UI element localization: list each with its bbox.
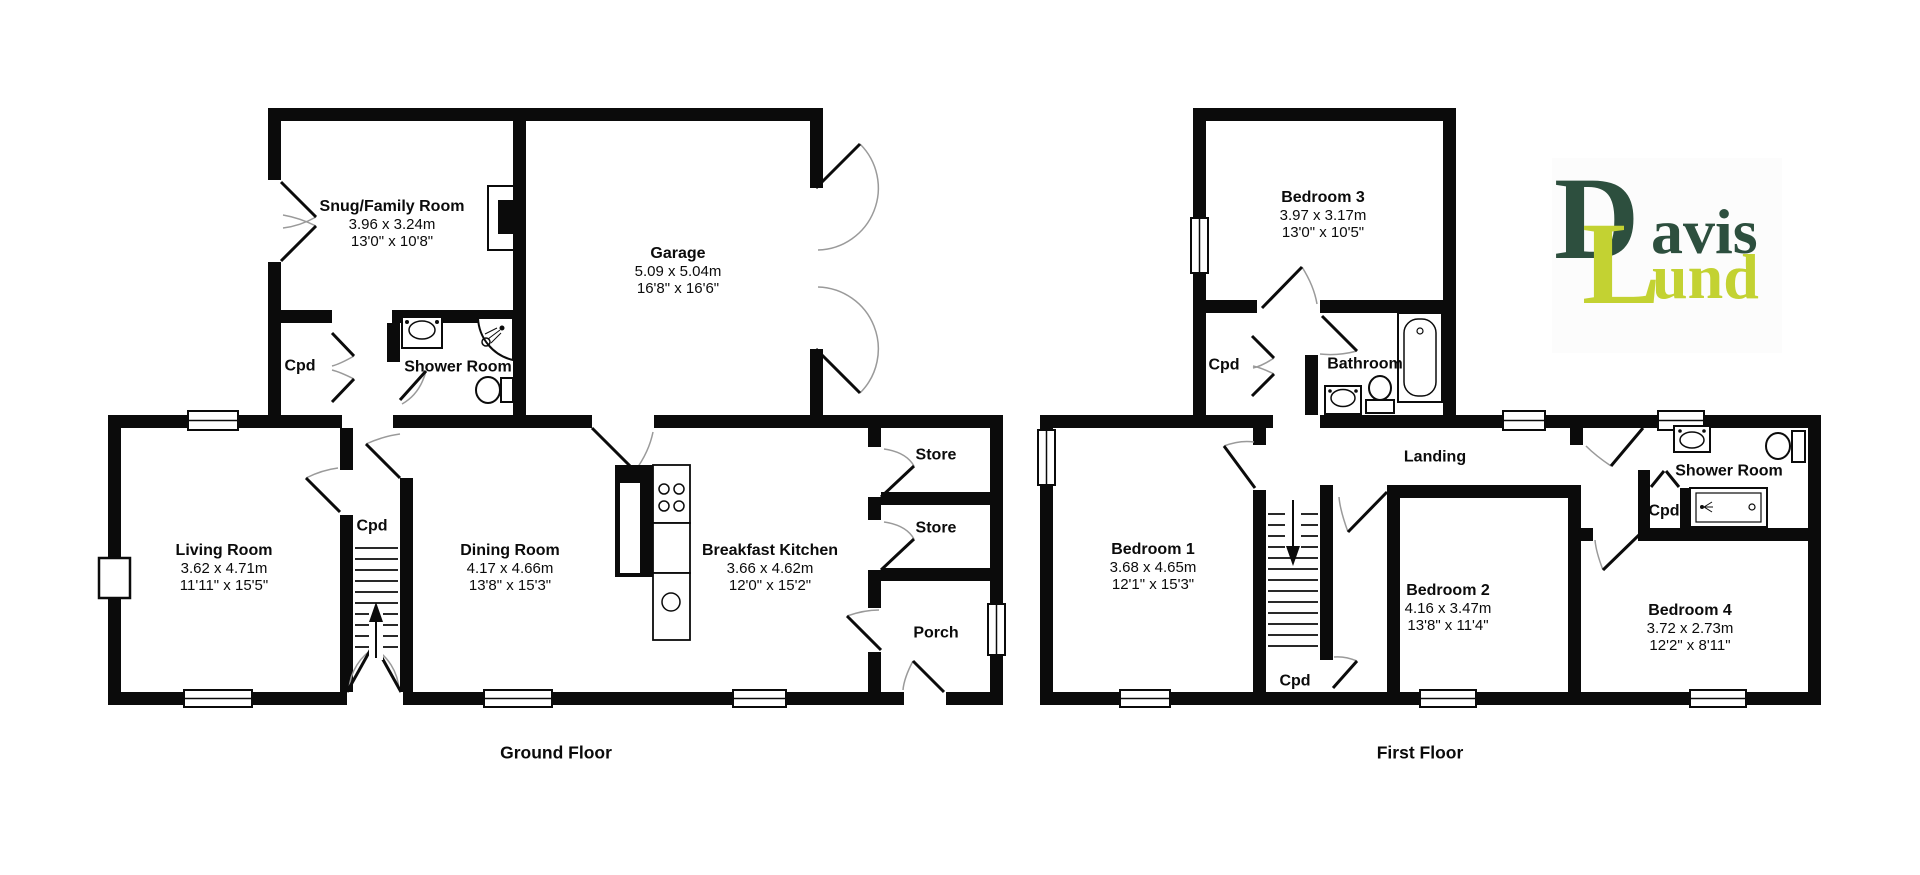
sink-icon (1674, 426, 1710, 452)
ground-floor-title: Ground Floor (500, 743, 612, 764)
room-label-garage: Garage 5.09 x 5.04m 16'8" x 16'6" (635, 245, 722, 298)
davis-lund-logo: D avis L und (1552, 158, 1782, 353)
room-label-breakfast-kitchen: Breakfast Kitchen 3.66 x 4.62m 12'0" x 1… (702, 542, 838, 595)
stairs-ground (355, 548, 398, 660)
room-label-store-2: Store (916, 519, 957, 537)
ground-floor-plan (99, 108, 1005, 707)
room-label-bathroom: Bathroom (1327, 355, 1403, 373)
toilet-icon (1766, 431, 1805, 462)
room-label-shower-room-ground: Shower Room (404, 358, 512, 376)
room-label-cpd-shower: Cpd (1648, 502, 1679, 520)
room-label-bedroom-2: Bedroom 2 4.16 x 3.47m 13'8" x 11'4" (1405, 582, 1492, 635)
room-label-cpd-understairs: Cpd (1279, 672, 1310, 690)
window-icon (184, 411, 1005, 707)
stairs-first (1268, 495, 1318, 646)
toilet-icon (1366, 376, 1394, 413)
room-label-cpd-landing: Cpd (1208, 356, 1239, 374)
room-label-porch: Porch (913, 624, 958, 642)
floorplan-drawing (0, 0, 1920, 875)
room-label-store-1: Store (916, 446, 957, 464)
corner-shower-icon (478, 318, 513, 360)
floorplan-page: Snug/Family Room 3.96 x 3.24m 13'0" x 10… (0, 0, 1920, 875)
room-label-bedroom-4: Bedroom 4 3.72 x 2.73m 12'2" x 8'11" (1647, 602, 1734, 655)
shower-tray-icon (1690, 488, 1767, 527)
logo-letter-l: L (1582, 205, 1661, 323)
room-label-landing: Landing (1404, 448, 1466, 466)
room-label-cpd-hall-ground: Cpd (356, 517, 387, 535)
logo-text-und: und (1652, 245, 1759, 309)
room-label-bedroom-3: Bedroom 3 3.97 x 3.17m 13'0" x 10'5" (1280, 189, 1367, 242)
room-label-cpd-upper-ground: Cpd (284, 357, 315, 375)
bath-icon (1398, 313, 1442, 402)
kitchen-units (615, 465, 690, 640)
sink-icon (1325, 386, 1361, 414)
room-label-snug-family-room: Snug/Family Room 3.96 x 3.24m 13'0" x 10… (320, 198, 465, 251)
room-label-shower-room-first: Shower Room (1675, 462, 1783, 480)
wall-openings (1273, 415, 1320, 428)
room-label-dining-room: Dining Room 4.17 x 4.66m 13'8" x 15'3" (460, 542, 560, 595)
sink-icon (402, 317, 442, 348)
first-floor-title: First Floor (1377, 743, 1464, 764)
toilet-icon (476, 377, 513, 403)
room-label-bedroom-1: Bedroom 1 3.68 x 4.65m 12'1" x 15'3" (1110, 541, 1197, 594)
room-label-living-room: Living Room 3.62 x 4.71m 11'11" x 15'5" (176, 542, 273, 595)
